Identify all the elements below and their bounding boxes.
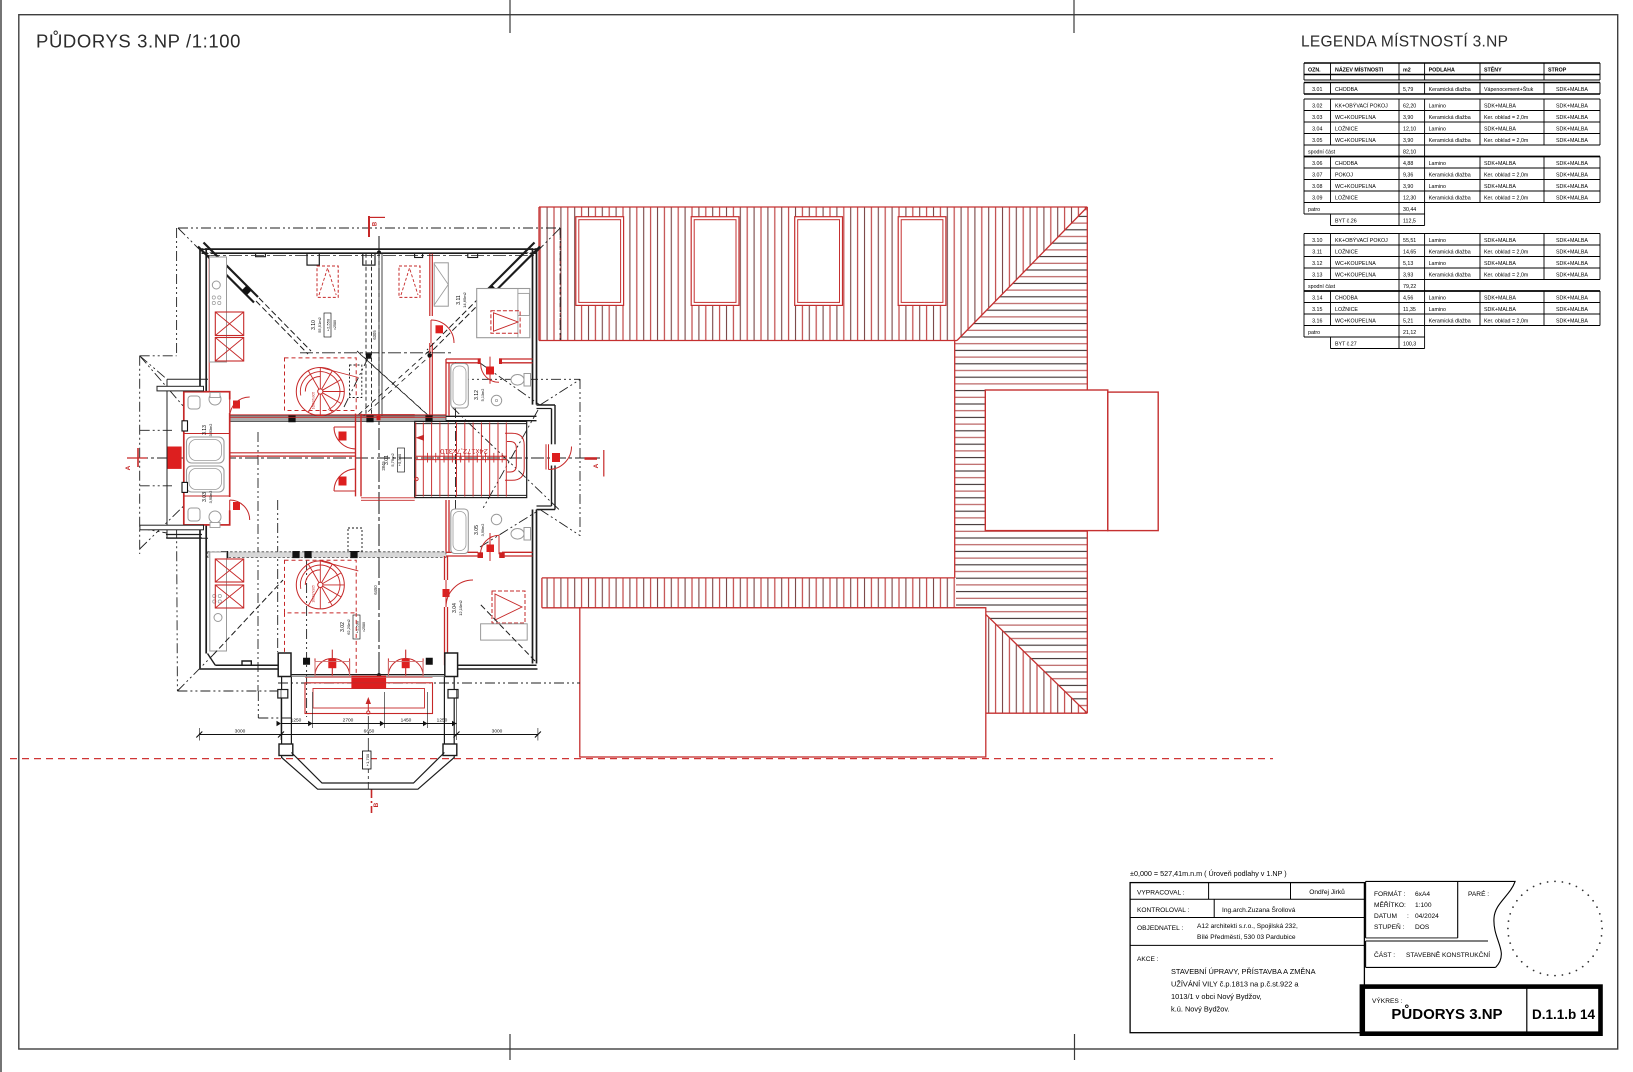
svg-text:5,21: 5,21 — [1403, 318, 1413, 324]
svg-text:SDK+MALBA: SDK+MALBA — [1556, 184, 1588, 190]
svg-text:Keramická dlažba: Keramická dlažba — [1429, 318, 1471, 324]
svg-text:3.01: 3.01 — [1312, 87, 1322, 93]
svg-text:3,90: 3,90 — [1403, 138, 1413, 144]
svg-text:3.16: 3.16 — [1312, 318, 1322, 324]
svg-text:Lamino: Lamino — [1429, 261, 1446, 267]
svg-text:MĚŘÍTKO:: MĚŘÍTKO: — [1374, 900, 1406, 909]
svg-text:SDK+MALBA: SDK+MALBA — [1556, 115, 1588, 121]
svg-text:3.05: 3.05 — [1312, 138, 1322, 144]
svg-text:SDK+MALBA: SDK+MALBA — [1556, 195, 1588, 201]
svg-text:Ker. obklad = 2,0m: Ker. obklad = 2,0m — [1484, 272, 1529, 278]
svg-text:SDK+MALBA: SDK+MALBA — [1484, 307, 1516, 313]
svg-text:3.05: 3.05 — [474, 525, 480, 535]
svg-text:SDK+MALBA: SDK+MALBA — [1556, 103, 1588, 109]
svg-text:Keramická dlažba: Keramická dlažba — [1429, 272, 1471, 278]
svg-text:16x197x905: 16x197x905 — [311, 585, 315, 603]
svg-text:Ker. obklad = 2,0m: Ker. obklad = 2,0m — [1484, 172, 1529, 178]
svg-text:3,90: 3,90 — [1403, 115, 1413, 121]
svg-text:DOS: DOS — [1415, 924, 1430, 931]
svg-text:1:100: 1:100 — [1415, 902, 1432, 909]
svg-text:4,88: 4,88 — [1403, 161, 1413, 167]
svg-text:Lamino: Lamino — [1429, 126, 1446, 132]
svg-text:SDK+MALBA: SDK+MALBA — [1556, 138, 1588, 144]
svg-text:12,30: 12,30 — [1403, 195, 1416, 201]
svg-text:5,13m2: 5,13m2 — [481, 389, 485, 402]
svg-text:PŮDORYS 3.NP: PŮDORYS 3.NP — [1391, 1004, 1502, 1023]
svg-text:spodní část: spodní část — [1308, 284, 1336, 290]
svg-text:2700: 2700 — [343, 717, 354, 723]
svg-text:Ker. obklad = 2,0m: Ker. obklad = 2,0m — [1484, 249, 1529, 255]
svg-text:WC+KOUPELNA: WC+KOUPELNA — [1335, 115, 1376, 121]
svg-text:POKOJ: POKOJ — [1335, 172, 1353, 178]
svg-text:patro: patro — [1308, 330, 1320, 336]
svg-text:OZN.: OZN. — [1308, 68, 1321, 74]
svg-text:B: B — [373, 802, 380, 807]
svg-text:VÝKRES :: VÝKRES : — [1372, 996, 1403, 1005]
svg-text:LEGENDA MÍSTNOSTÍ 3.NP: LEGENDA MÍSTNOSTÍ 3.NP — [1301, 34, 1508, 51]
svg-text:PARÉ :: PARÉ : — [1468, 889, 1489, 898]
svg-text:04/2024: 04/2024 — [1415, 913, 1439, 920]
svg-text:3.13: 3.13 — [1312, 272, 1322, 278]
svg-text:Lamino: Lamino — [1429, 184, 1446, 190]
svg-text:SDK+MALBA: SDK+MALBA — [1556, 318, 1588, 324]
svg-text:3000: 3000 — [492, 728, 503, 734]
svg-text:3.11: 3.11 — [1312, 249, 1322, 255]
svg-text:3,90: 3,90 — [1403, 184, 1413, 190]
svg-text:A: A — [593, 463, 600, 468]
svg-text:CHODBA: CHODBA — [1335, 295, 1358, 301]
svg-text:STAVEBNÍ ÚPRAVY, PŘÍSTAVBA A Z: STAVEBNÍ ÚPRAVY, PŘÍSTAVBA A ZMĚNA — [1171, 967, 1316, 976]
svg-text:12,10m2: 12,10m2 — [458, 599, 463, 615]
svg-text:82,10: 82,10 — [1403, 149, 1416, 155]
svg-text:4,56: 4,56 — [1403, 295, 1413, 301]
svg-text:OBJEDNATEL :: OBJEDNATEL : — [1137, 925, 1183, 932]
svg-text:112,5: 112,5 — [1403, 218, 1416, 224]
svg-text::: : — [1407, 913, 1409, 920]
svg-text:WC+KOUPELNA: WC+KOUPELNA — [1335, 272, 1376, 278]
svg-text:3.07: 3.07 — [1312, 172, 1322, 178]
svg-text:1250: 1250 — [437, 717, 448, 723]
svg-text:patro: patro — [1308, 207, 1320, 213]
svg-text:14,65: 14,65 — [1403, 249, 1416, 255]
svg-text:21,12: 21,12 — [1403, 330, 1416, 336]
svg-text:Keramická dlažba: Keramická dlažba — [1429, 138, 1471, 144]
svg-text:LOŽNICE: LOŽNICE — [1335, 305, 1358, 313]
svg-text:11,35: 11,35 — [1403, 307, 1416, 313]
svg-text:6650: 6650 — [364, 728, 375, 734]
svg-text:3.08: 3.08 — [1312, 184, 1322, 190]
svg-text:PODLAHA: PODLAHA — [1429, 68, 1455, 74]
svg-text:SDK+MALBA: SDK+MALBA — [1484, 184, 1516, 190]
svg-text:3.15: 3.15 — [1312, 307, 1322, 313]
svg-text:STĚNY: STĚNY — [1484, 66, 1502, 74]
svg-text:1013/1 v obci Nový Bydžov,: 1013/1 v obci Nový Bydžov, — [1171, 992, 1262, 1001]
svg-text:CHODBA: CHODBA — [1335, 87, 1358, 93]
svg-text:55,51m2: 55,51m2 — [317, 316, 322, 332]
svg-text:100,3: 100,3 — [1403, 341, 1416, 347]
svg-text:3.04: 3.04 — [1312, 126, 1322, 132]
svg-text:3.12: 3.12 — [1312, 261, 1322, 267]
svg-text:SDK+MALBA: SDK+MALBA — [1556, 307, 1588, 313]
svg-text:Bílé Předměstí, 530 03 Pardubi: Bílé Předměstí, 530 03 Pardubice — [1197, 934, 1296, 941]
svg-text:SDK+MALBA: SDK+MALBA — [1556, 126, 1588, 132]
svg-text:62,20: 62,20 — [1403, 103, 1416, 109]
svg-text:STUPEŇ :: STUPEŇ : — [1374, 922, 1405, 931]
svg-text:A: A — [125, 465, 132, 470]
svg-text:Ondřej Jirků: Ondřej Jirků — [1309, 888, 1345, 896]
svg-text:3.09: 3.09 — [1312, 195, 1322, 201]
svg-text:5,79m2: 5,79m2 — [390, 453, 395, 467]
svg-text:3.10: 3.10 — [1312, 238, 1322, 244]
svg-text:1450: 1450 — [401, 717, 412, 723]
svg-text:STAVEBNĚ KONSTRUKČNÍ: STAVEBNĚ KONSTRUKČNÍ — [1406, 950, 1490, 959]
svg-text:DATUM: DATUM — [1374, 913, 1397, 920]
svg-text:=2580: =2580 — [362, 622, 366, 632]
svg-text:B: B — [373, 221, 379, 226]
svg-text:KK+OBÝVACÍ POKOJ: KK+OBÝVACÍ POKOJ — [1335, 102, 1388, 109]
svg-text:VYPRACOVAL :: VYPRACOVAL : — [1137, 890, 1185, 897]
svg-text:9,36: 9,36 — [1403, 172, 1413, 178]
svg-text:3.06: 3.06 — [1312, 161, 1322, 167]
svg-text:SDK+MALBA: SDK+MALBA — [1484, 295, 1516, 301]
svg-text:Ing.arch.Zuzana Šrollová: Ing.arch.Zuzana Šrollová — [1222, 905, 1296, 914]
svg-text:+5,530: +5,530 — [355, 620, 360, 633]
svg-text:WC+KOUPELNA: WC+KOUPELNA — [1335, 318, 1376, 324]
svg-text:6305: 6305 — [372, 330, 377, 340]
svg-text:3,90m2: 3,90m2 — [481, 524, 485, 537]
svg-text:2845: 2845 — [381, 461, 386, 471]
svg-text:1250: 1250 — [291, 717, 302, 723]
svg-text:spodní část: spodní část — [1308, 149, 1336, 155]
svg-text:Keramická dlažba: Keramická dlažba — [1429, 115, 1471, 121]
svg-text:FORMÁT :: FORMÁT : — [1374, 889, 1406, 898]
svg-text:30,44: 30,44 — [1403, 207, 1416, 213]
svg-text:NÁZEV MÍSTNOSTI: NÁZEV MÍSTNOSTI — [1335, 66, 1384, 74]
svg-text:SDK+MALBA: SDK+MALBA — [1556, 172, 1588, 178]
svg-text:Keramická dlažba: Keramická dlažba — [1429, 87, 1471, 93]
svg-text:A12 architekti s.r.o., Spojils: A12 architekti s.r.o., Spojilská 232, — [1197, 923, 1298, 930]
svg-text:3.03: 3.03 — [202, 492, 208, 502]
svg-text:3,93m2: 3,93m2 — [209, 424, 213, 437]
svg-text:WC+KOUPELNA: WC+KOUPELNA — [1335, 138, 1376, 144]
svg-text:BYT č.27: BYT č.27 — [1335, 341, 1357, 347]
svg-text:12,10: 12,10 — [1403, 126, 1416, 132]
svg-text:STROP: STROP — [1548, 68, 1567, 74]
svg-text:24x172,7x310: 24x172,7x310 — [440, 447, 488, 456]
svg-text:SDK+MALBA: SDK+MALBA — [1556, 87, 1588, 93]
svg-text:3.02: 3.02 — [1312, 103, 1322, 109]
svg-text:55,51: 55,51 — [1403, 238, 1416, 244]
svg-text:SDK+MALBA: SDK+MALBA — [1556, 161, 1588, 167]
svg-text:Ker. obklad = 2,0m: Ker. obklad = 2,0m — [1484, 115, 1529, 121]
svg-text:Lamino: Lamino — [1429, 103, 1446, 109]
svg-text:Lamino: Lamino — [1429, 238, 1446, 244]
svg-text:Vápenocement+Štuk: Vápenocement+Štuk — [1484, 86, 1534, 93]
svg-text:LOŽNICE: LOŽNICE — [1335, 124, 1358, 132]
svg-text:Keramická dlažba: Keramická dlažba — [1429, 249, 1471, 255]
svg-text:k.ú. Nový Bydžov.: k.ú. Nový Bydžov. — [1171, 1005, 1230, 1014]
svg-text:3000: 3000 — [235, 728, 246, 734]
svg-text:SDK+MALBA: SDK+MALBA — [1484, 103, 1516, 109]
svg-text:5,13: 5,13 — [1403, 261, 1413, 267]
svg-text:Keramická dlažba: Keramická dlažba — [1429, 195, 1471, 201]
svg-text:Lamino: Lamino — [1429, 295, 1446, 301]
svg-text:SDK+MALBA: SDK+MALBA — [1556, 272, 1588, 278]
svg-text:3,90m2: 3,90m2 — [209, 491, 213, 504]
svg-text:Lamino: Lamino — [1429, 161, 1446, 167]
svg-text:3.13: 3.13 — [202, 425, 208, 435]
svg-text:6450: 6450 — [373, 585, 378, 595]
svg-text:Ker. obklad = 2,0m: Ker. obklad = 2,0m — [1484, 318, 1529, 324]
svg-text:PŮDORYS 3.NP /1:100: PŮDORYS 3.NP /1:100 — [36, 31, 241, 52]
svg-text:SDK+MALBA: SDK+MALBA — [1556, 238, 1588, 244]
svg-text:SDK+MALBA: SDK+MALBA — [1556, 261, 1588, 267]
svg-text:+1,700: +1,700 — [365, 753, 370, 766]
svg-text:SDK+MALBA: SDK+MALBA — [1484, 238, 1516, 244]
svg-text:14,65m2: 14,65m2 — [462, 291, 467, 307]
svg-text:SDK+MALBA: SDK+MALBA — [1484, 126, 1516, 132]
svg-text:SDK+MALBA: SDK+MALBA — [1484, 261, 1516, 267]
svg-text:AKCE :: AKCE : — [1137, 956, 1159, 963]
svg-text:LOŽNICE: LOŽNICE — [1335, 247, 1358, 255]
svg-text:Ker. obklad = 2,0m: Ker. obklad = 2,0m — [1484, 195, 1529, 201]
svg-text:WC+KOUPELNA: WC+KOUPELNA — [1335, 261, 1376, 267]
svg-text:WC+KOUPELNA: WC+KOUPELNA — [1335, 184, 1376, 190]
svg-text:KONTROLOVAL :: KONTROLOVAL : — [1137, 907, 1190, 914]
svg-text:KK+OBÝVACÍ POKOJ: KK+OBÝVACÍ POKOJ — [1335, 237, 1388, 244]
svg-text:Ker. obklad = 2,0m: Ker. obklad = 2,0m — [1484, 138, 1529, 144]
svg-text:3.12: 3.12 — [474, 390, 480, 400]
svg-text:Lamino: Lamino — [1429, 307, 1446, 313]
svg-text:79,22: 79,22 — [1403, 284, 1416, 290]
svg-text:Keramická dlažba: Keramická dlažba — [1429, 172, 1471, 178]
svg-text:3.14: 3.14 — [1312, 295, 1322, 301]
svg-text:SDK+MALBA: SDK+MALBA — [1484, 161, 1516, 167]
svg-text:m2: m2 — [1403, 68, 1411, 74]
svg-text:CHODBA: CHODBA — [1335, 161, 1358, 167]
svg-text:±0,000 = 527,41m.n.m ( Úroveň: ±0,000 = 527,41m.n.m ( Úroveň podlahy v … — [1130, 869, 1287, 878]
svg-text:UŽÍVÁNÍ VILY č.p.1813 na p.č.s: UŽÍVÁNÍ VILY č.p.1813 na p.č.st.922 a — [1171, 980, 1299, 989]
svg-text:5,79: 5,79 — [1403, 87, 1413, 93]
svg-text:D.1.1.b 14: D.1.1.b 14 — [1532, 1007, 1596, 1022]
svg-text:BYT č.26: BYT č.26 — [1335, 218, 1357, 224]
svg-text:SDK+MALBA: SDK+MALBA — [1556, 295, 1588, 301]
svg-text:62,20m2: 62,20m2 — [346, 618, 351, 634]
svg-text:SDK+MALBA: SDK+MALBA — [1556, 249, 1588, 255]
svg-text:3.03: 3.03 — [1312, 115, 1322, 121]
svg-text:16x197x905: 16x197x905 — [311, 392, 315, 410]
svg-text:3,93: 3,93 — [1403, 272, 1413, 278]
svg-text:ČÁST :: ČÁST : — [1374, 950, 1395, 959]
svg-text:6xA4: 6xA4 — [1415, 891, 1430, 898]
svg-text:LOŽNICE: LOŽNICE — [1335, 193, 1358, 201]
svg-text:+2,550: +2,550 — [326, 318, 331, 331]
svg-text:=2580: =2580 — [333, 320, 337, 330]
